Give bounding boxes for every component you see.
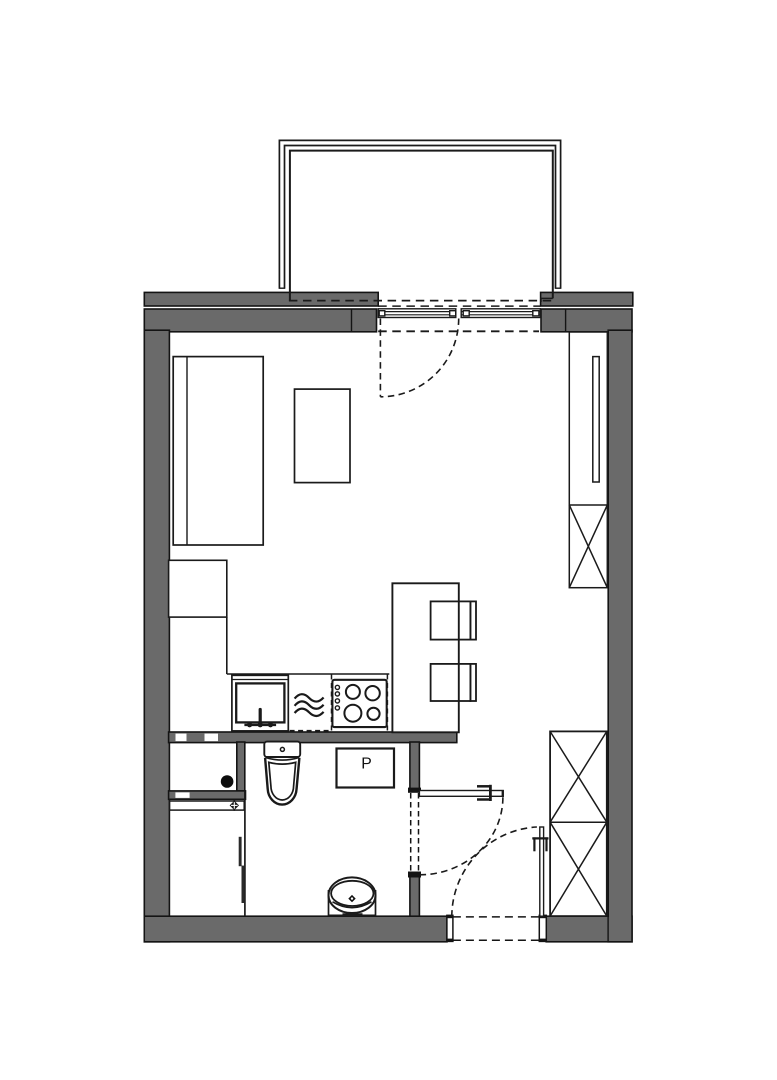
svg-text:P: P (361, 755, 372, 772)
